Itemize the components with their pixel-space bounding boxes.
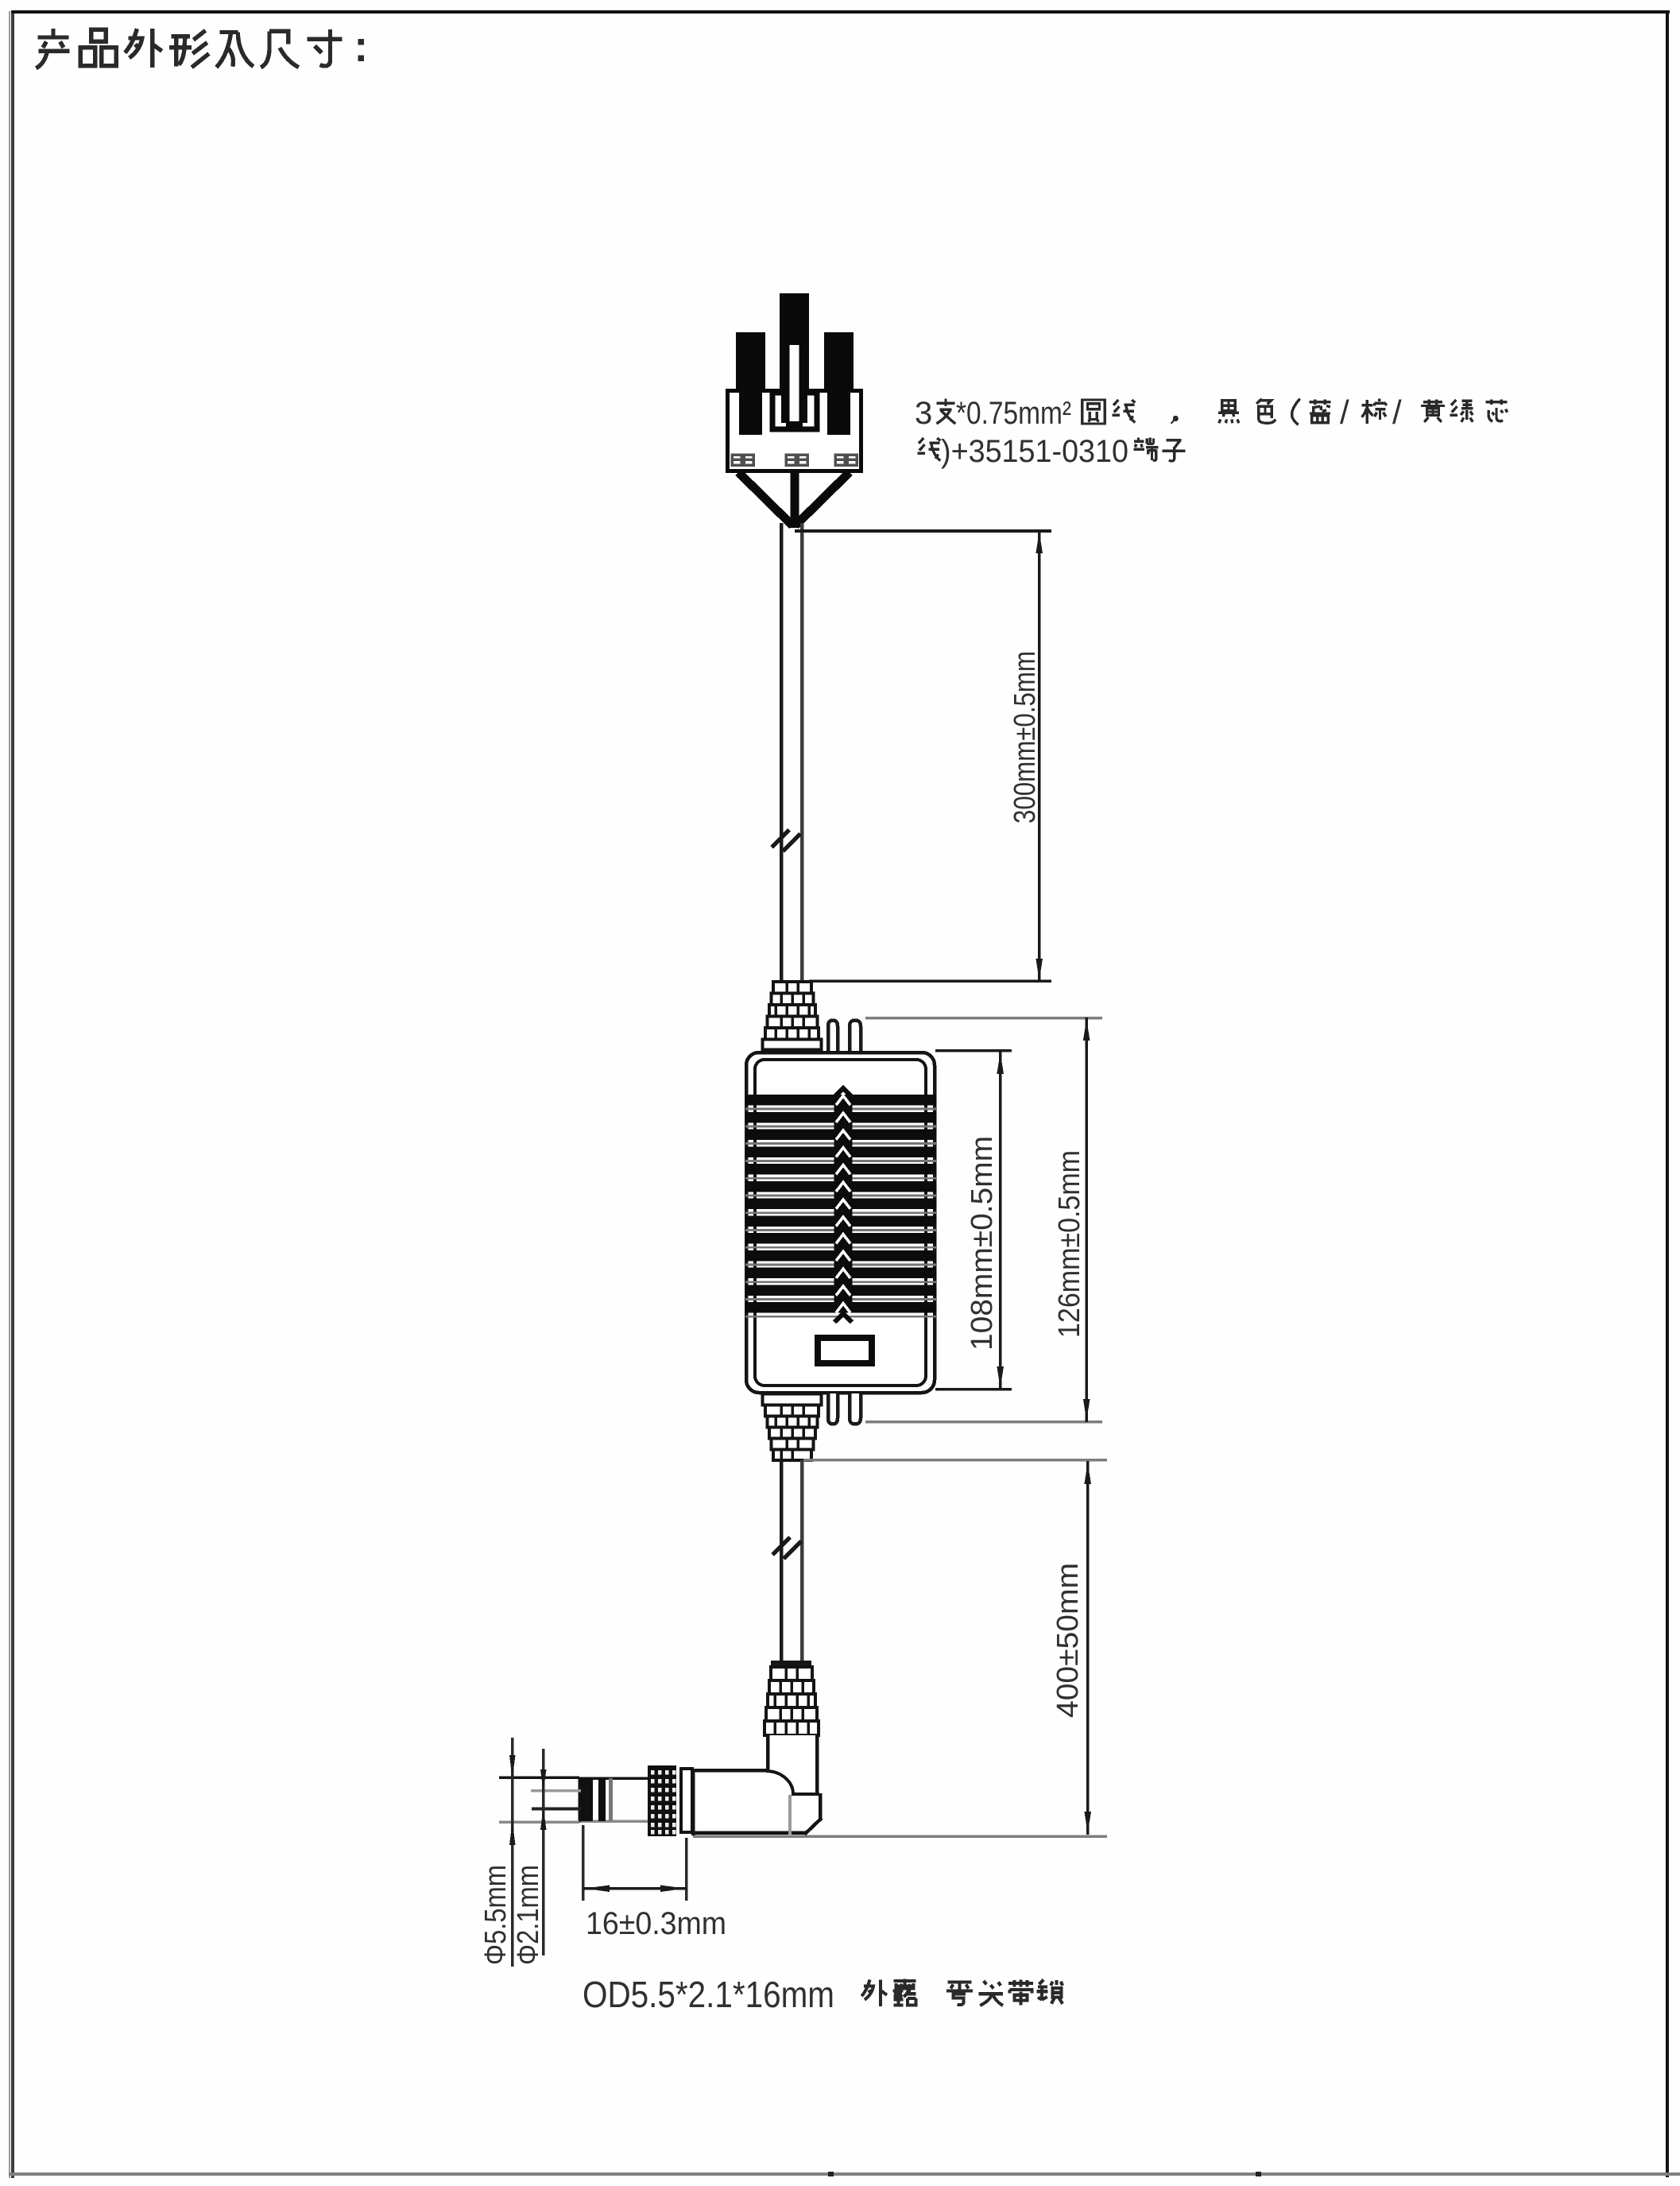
svg-text:)+35151-0310: )+35151-0310 [941,434,1128,469]
svg-text:16±0.3mm: 16±0.3mm [586,1906,726,1941]
svg-text:300mm±0.5mm: 300mm±0.5mm [1008,651,1042,824]
svg-text:Φ5.5mm: Φ5.5mm [479,1865,513,1965]
svg-text:3: 3 [915,396,932,431]
svg-text:*0.75mm²: *0.75mm² [956,396,1071,431]
svg-text:108mm±0.5mm: 108mm±0.5mm [966,1136,999,1351]
svg-text:126mm±0.5mm: 126mm±0.5mm [1053,1150,1086,1338]
svg-text:OD5.5*2.1*16mm: OD5.5*2.1*16mm [583,1974,834,2015]
svg-text:Φ2.1mm: Φ2.1mm [512,1865,545,1965]
svg-text:/: / [1340,393,1349,431]
svg-text:/: / [1392,393,1402,431]
svg-text:400±50mm: 400±50mm [1051,1563,1085,1718]
